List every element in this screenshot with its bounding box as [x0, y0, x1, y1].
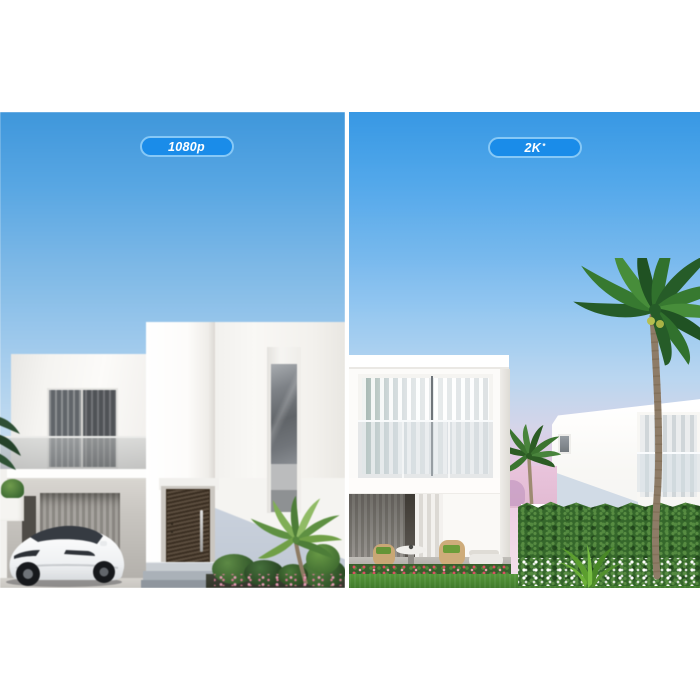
comparison-image: 1080p 2K*: [0, 0, 700, 700]
planter-plant: [1, 479, 24, 498]
floor-band: [349, 478, 500, 494]
small-palm-tree: [246, 496, 345, 584]
door-hinges: [171, 523, 173, 525]
front-door: [166, 489, 210, 570]
resolution-badge-1080p: 1080p: [140, 136, 234, 157]
badge-sup: *: [542, 142, 545, 151]
photo-comparison: 1080p 2K*: [0, 112, 700, 588]
entry-step: [146, 562, 218, 571]
door-handle: [200, 510, 203, 552]
white-car: [0, 508, 134, 588]
badge-label: 2K: [524, 141, 541, 155]
pink-flowers: [214, 574, 344, 586]
slot-window-glass: [271, 364, 297, 464]
panel-2k: [349, 112, 700, 588]
main-house-roof: [349, 355, 509, 369]
scene-1080p: [0, 112, 345, 588]
resolution-badge-2k: 2K*: [488, 137, 582, 158]
tall-palm-tree: [545, 258, 700, 580]
slot-window-panel: [271, 464, 297, 490]
palm-leaves-edge: [0, 408, 22, 472]
fern-bush: [547, 536, 627, 588]
badge-label: 1080p: [168, 140, 205, 154]
scene-2k: [349, 112, 700, 588]
panel-1080p: [0, 112, 345, 588]
glass-balcony: [358, 420, 493, 478]
